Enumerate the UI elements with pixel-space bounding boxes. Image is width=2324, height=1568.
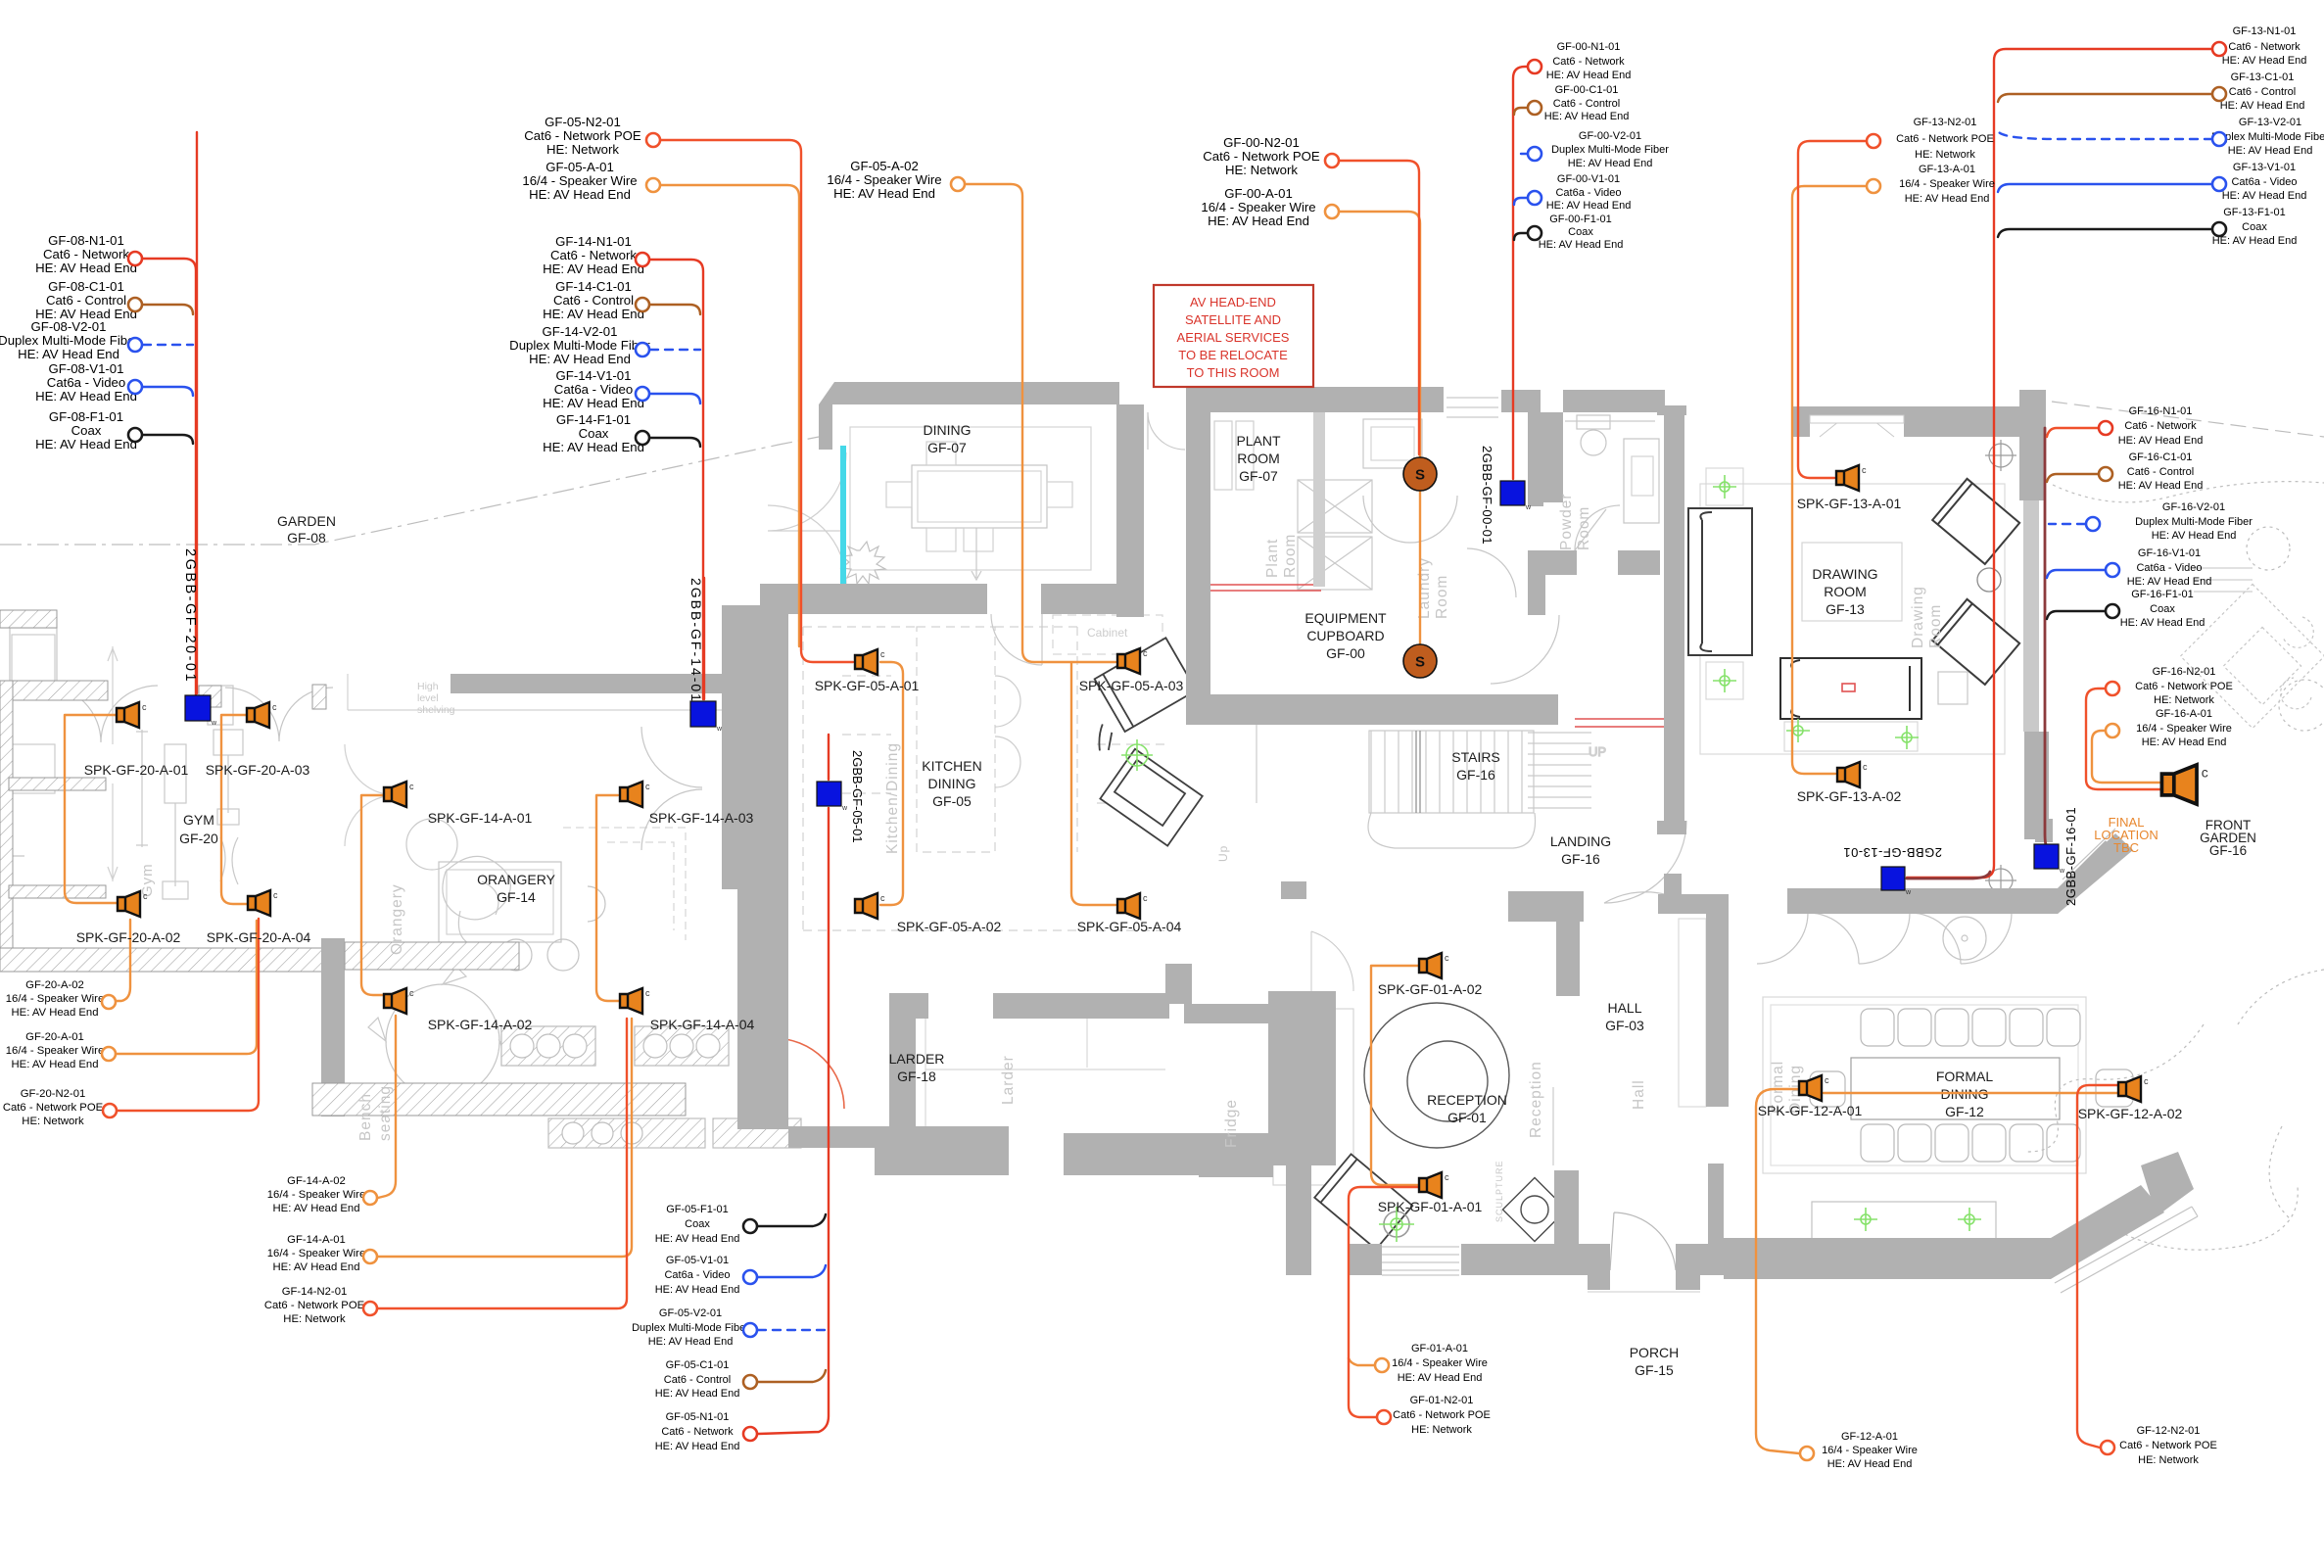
- svg-text:HE: AV Head End: HE: AV Head End: [833, 186, 935, 201]
- svg-text:c: c: [880, 649, 885, 659]
- svg-text:GF-16: GF-16: [1561, 851, 1600, 867]
- svg-text:Drawing: Drawing: [1910, 586, 1926, 648]
- svg-text:GF-14-A-01: GF-14-A-01: [287, 1234, 346, 1246]
- svg-text:Room: Room: [1927, 604, 1944, 648]
- svg-text:Room: Room: [1282, 534, 1299, 578]
- svg-text:HE: Network: HE: Network: [2154, 694, 2214, 706]
- svg-text:c: c: [1825, 1075, 1829, 1085]
- svg-text:GF-01: GF-01: [1447, 1110, 1487, 1125]
- svg-text:Coax: Coax: [2242, 221, 2267, 233]
- svg-text:HE: AV Head End: HE: AV Head End: [648, 1336, 734, 1348]
- svg-text:SPK-GF-14-A-04: SPK-GF-14-A-04: [650, 1017, 755, 1032]
- svg-text:GF-08-C1-01: GF-08-C1-01: [48, 279, 124, 294]
- svg-text:HE: AV Head End: HE: AV Head End: [2152, 530, 2237, 542]
- svg-text:GF-05-N1-01: GF-05-N1-01: [666, 1411, 730, 1423]
- svg-text:GF-14-A-02: GF-14-A-02: [287, 1175, 346, 1187]
- svg-text:c: c: [645, 988, 650, 998]
- svg-text:PORCH: PORCH: [1630, 1345, 1680, 1360]
- svg-text:16/4 - Speaker Wire: 16/4 - Speaker Wire: [1392, 1357, 1488, 1369]
- svg-text:GF-05-A-01: GF-05-A-01: [545, 160, 614, 174]
- svg-text:AV HEAD-END: AV HEAD-END: [1190, 295, 1276, 309]
- svg-text:GF-05-V1-01: GF-05-V1-01: [666, 1255, 729, 1266]
- svg-text:SPK-GF-14-A-03: SPK-GF-14-A-03: [649, 810, 754, 826]
- svg-text:ROOM: ROOM: [1824, 584, 1867, 599]
- svg-text:c: c: [273, 890, 278, 900]
- svg-text:Cat6 - Control: Cat6 - Control: [46, 293, 126, 308]
- svg-text:Cat6 - Network: Cat6 - Network: [2228, 41, 2300, 53]
- svg-text:SPK-GF-20-A-04: SPK-GF-20-A-04: [207, 929, 311, 945]
- svg-text:2GBB-GF-14-01: 2GBB-GF-14-01: [688, 578, 704, 703]
- svg-text:c: c: [2144, 1076, 2149, 1086]
- svg-text:Reception: Reception: [1528, 1061, 1544, 1138]
- svg-text:HE: AV Head End: HE: AV Head End: [2222, 55, 2307, 67]
- svg-text:HE: AV Head End: HE: AV Head End: [2220, 100, 2305, 112]
- svg-text:16/4 - Speaker Wire: 16/4 - Speaker Wire: [6, 993, 104, 1005]
- svg-text:HE: AV Head End: HE: AV Head End: [35, 261, 137, 275]
- svg-text:Powder: Powder: [1558, 493, 1575, 550]
- svg-text:Duplex Multi-Mode Fiber: Duplex Multi-Mode Fiber: [632, 1322, 749, 1334]
- svg-text:GF-14-N1-01: GF-14-N1-01: [555, 234, 632, 249]
- svg-text:HE: Network: HE: Network: [1225, 163, 1298, 177]
- svg-text:Coax: Coax: [2150, 603, 2175, 615]
- svg-text:GF-00-N2-01: GF-00-N2-01: [1223, 135, 1300, 150]
- svg-text:HE: AV Head End: HE: AV Head End: [2228, 145, 2313, 157]
- svg-text:16/4 - Speaker Wire: 16/4 - Speaker Wire: [267, 1189, 365, 1201]
- svg-text:HE: AV Head End: HE: AV Head End: [273, 1261, 360, 1273]
- svg-text:HE: AV Head End: HE: AV Head End: [35, 437, 137, 451]
- svg-text:16/4 - Speaker Wire: 16/4 - Speaker Wire: [827, 172, 941, 187]
- svg-text:GF-16-C1-01: GF-16-C1-01: [2129, 451, 2193, 463]
- svg-text:c: c: [143, 891, 148, 901]
- svg-text:HE: AV Head End: HE: AV Head End: [543, 396, 644, 410]
- svg-text:Kitchen/Dining: Kitchen/Dining: [884, 742, 901, 854]
- svg-text:SPK-GF-01-A-02: SPK-GF-01-A-02: [1378, 981, 1483, 997]
- svg-text:HE: AV Head End: HE: AV Head End: [2127, 576, 2212, 588]
- svg-text:GF-00-A-01: GF-00-A-01: [1224, 186, 1293, 201]
- svg-text:Coax: Coax: [579, 426, 609, 441]
- svg-text:HE: AV Head End: HE: AV Head End: [655, 1388, 740, 1400]
- svg-text:HE: AV Head End: HE: AV Head End: [1539, 239, 1624, 251]
- svg-text:GF-03: GF-03: [1605, 1018, 1644, 1033]
- svg-text:2GBB-GF-05-01: 2GBB-GF-05-01: [850, 750, 865, 843]
- svg-text:RECEPTION: RECEPTION: [1427, 1092, 1507, 1108]
- svg-text:Cat6 - Control: Cat6 - Control: [664, 1374, 731, 1386]
- svg-text:GF-13-C1-01: GF-13-C1-01: [2231, 71, 2295, 83]
- svg-text:c: c: [880, 893, 885, 903]
- svg-text:GF-15: GF-15: [1635, 1362, 1674, 1378]
- svg-text:Cat6 - Network: Cat6 - Network: [1552, 56, 1625, 68]
- svg-text:SPK-GF-05-A-02: SPK-GF-05-A-02: [897, 919, 1002, 934]
- svg-text:GF-12: GF-12: [1945, 1104, 1984, 1119]
- svg-text:GF-07: GF-07: [1239, 468, 1278, 484]
- svg-text:GF-20-A-01: GF-20-A-01: [25, 1031, 84, 1043]
- svg-text:GF-13-N2-01: GF-13-N2-01: [1914, 117, 1977, 128]
- svg-text:SPK-GF-05-A-04: SPK-GF-05-A-04: [1077, 919, 1182, 934]
- svg-text:GF-16: GF-16: [2209, 843, 2247, 858]
- svg-text:GF-12-A-01: GF-12-A-01: [1841, 1431, 1898, 1443]
- svg-text:HE: AV Head End: HE: AV Head End: [2120, 617, 2205, 629]
- svg-text:Cat6 - Network: Cat6 - Network: [661, 1426, 734, 1438]
- svg-text:GF-00-V2-01: GF-00-V2-01: [1579, 130, 1641, 142]
- svg-text:c: c: [1862, 465, 1867, 475]
- svg-text:Duplex Multi-Mode Fiber: Duplex Multi-Mode Fiber: [2135, 516, 2253, 528]
- svg-text:Room: Room: [1576, 506, 1592, 550]
- svg-text:GF-05-A-02: GF-05-A-02: [850, 159, 919, 173]
- svg-text:GF-05-V2-01: GF-05-V2-01: [659, 1307, 722, 1319]
- svg-text:HE: AV Head End: HE: AV Head End: [2212, 235, 2298, 247]
- svg-text:16/4 - Speaker Wire: 16/4 - Speaker Wire: [522, 173, 637, 188]
- svg-text:c: c: [409, 782, 414, 791]
- svg-text:GF-16-V1-01: GF-16-V1-01: [2138, 547, 2201, 559]
- svg-text:SPK-GF-05-A-03: SPK-GF-05-A-03: [1079, 678, 1184, 693]
- svg-text:GF-08-V1-01: GF-08-V1-01: [49, 361, 124, 376]
- svg-text:c: c: [272, 702, 277, 712]
- svg-text:2GBB-GF-13-01: 2GBB-GF-13-01: [1843, 845, 1942, 860]
- svg-text:HE: AV Head End: HE: AV Head End: [12, 1059, 99, 1070]
- svg-text:GF-18: GF-18: [897, 1069, 936, 1084]
- svg-text:Cat6 - Network POE: Cat6 - Network POE: [2119, 1440, 2217, 1451]
- svg-text:Cat6 - Control: Cat6 - Control: [2229, 86, 2296, 98]
- svg-text:Coax: Coax: [71, 423, 102, 438]
- svg-text:DINING: DINING: [924, 422, 972, 438]
- svg-text:16/4 - Speaker Wire: 16/4 - Speaker Wire: [267, 1248, 365, 1259]
- svg-text:shelving: shelving: [417, 704, 455, 716]
- svg-text:Plant: Plant: [1264, 539, 1281, 578]
- svg-text:KITCHEN: KITCHEN: [922, 758, 981, 774]
- svg-text:Bench: Bench: [357, 1093, 374, 1141]
- svg-text:HE: AV Head End: HE: AV Head End: [529, 352, 631, 366]
- svg-text:AERIAL SERVICES: AERIAL SERVICES: [1177, 330, 1290, 345]
- svg-text:HE: Network: HE: Network: [546, 142, 619, 157]
- svg-text:level: level: [417, 692, 439, 704]
- svg-text:Cat6 - Network POE: Cat6 - Network POE: [1393, 1409, 1491, 1421]
- svg-text:SPK-GF-13-A-01: SPK-GF-13-A-01: [1797, 496, 1902, 511]
- svg-text:Cat6 - Control: Cat6 - Control: [2127, 466, 2194, 478]
- svg-text:Gym: Gym: [139, 863, 156, 897]
- svg-text:HE: AV Head End: HE: AV Head End: [2142, 736, 2227, 748]
- svg-text:c: c: [409, 988, 414, 998]
- svg-text:DRAWING: DRAWING: [1812, 566, 1877, 582]
- svg-text:GF-13-N1-01: GF-13-N1-01: [2233, 25, 2297, 37]
- svg-text:GF-20-N2-01: GF-20-N2-01: [21, 1088, 86, 1100]
- svg-text:S: S: [1415, 467, 1425, 484]
- svg-text:LANDING: LANDING: [1550, 833, 1611, 849]
- svg-text:HE: AV Head End: HE: AV Head End: [2222, 190, 2307, 202]
- svg-text:c: c: [1445, 953, 1449, 963]
- svg-text:c: c: [142, 702, 147, 712]
- svg-text:Fridge: Fridge: [1223, 1099, 1240, 1148]
- svg-text:Duplex Multi-Mode Fiber: Duplex Multi-Mode Fiber: [1551, 144, 1669, 156]
- svg-text:GF-14-F1-01: GF-14-F1-01: [556, 412, 631, 427]
- svg-text:GF-01-N2-01: GF-01-N2-01: [1410, 1395, 1474, 1406]
- svg-text:c: c: [645, 782, 650, 791]
- svg-text:Cat6 - Control: Cat6 - Control: [553, 293, 634, 308]
- svg-text:2GBB-GF-00-01: 2GBB-GF-00-01: [1480, 446, 1494, 545]
- svg-text:GF-00-C1-01: GF-00-C1-01: [1555, 84, 1619, 96]
- svg-text:High: High: [417, 681, 439, 692]
- svg-text:HE: AV Head End: HE: AV Head End: [655, 1284, 740, 1296]
- svg-text:LARDER: LARDER: [889, 1051, 945, 1067]
- svg-text:STAIRS: STAIRS: [1451, 749, 1500, 765]
- svg-text:HE: AV Head End: HE: AV Head End: [1546, 70, 1632, 81]
- svg-text:HE: Network: HE: Network: [2138, 1454, 2199, 1466]
- svg-text:GF-05-N2-01: GF-05-N2-01: [545, 115, 621, 129]
- svg-text:SATELLITE AND: SATELLITE AND: [1185, 312, 1281, 327]
- svg-text:GF-13-V1-01: GF-13-V1-01: [2233, 162, 2296, 173]
- svg-text:2GBB-GF-16-01: 2GBB-GF-16-01: [2063, 807, 2078, 906]
- svg-text:GF-14: GF-14: [497, 889, 536, 905]
- svg-text:GF-08-F1-01: GF-08-F1-01: [49, 409, 123, 424]
- svg-text:GF-00-N1-01: GF-00-N1-01: [1557, 41, 1621, 53]
- svg-text:GF-14-N2-01: GF-14-N2-01: [282, 1286, 348, 1298]
- svg-text:2GBB-GF-20-01: 2GBB-GF-20-01: [182, 548, 198, 684]
- svg-text:TO BE RELOCATE: TO BE RELOCATE: [1178, 348, 1288, 362]
- svg-text:UP: UP: [1589, 744, 1606, 759]
- svg-text:HALL: HALL: [1607, 1000, 1641, 1016]
- svg-text:Coax: Coax: [685, 1218, 710, 1230]
- svg-text:GF-13-A-01: GF-13-A-01: [1919, 164, 1975, 175]
- svg-text:GF-00-V1-01: GF-00-V1-01: [1557, 173, 1620, 185]
- svg-text:w: w: [211, 720, 217, 727]
- svg-text:c: c: [2202, 764, 2208, 780]
- svg-text:GF-16-N1-01: GF-16-N1-01: [2129, 405, 2193, 417]
- svg-text:PLANT: PLANT: [1236, 433, 1281, 449]
- svg-text:HE: AV Head End: HE: AV Head End: [1905, 193, 1990, 205]
- svg-text:SPK-GF-01-A-01: SPK-GF-01-A-01: [1378, 1199, 1483, 1214]
- svg-text:Cat6a - Video: Cat6a - Video: [1555, 187, 1621, 199]
- svg-text:CUPBOARD: CUPBOARD: [1306, 628, 1384, 643]
- svg-text:HE: AV Head End: HE: AV Head End: [1568, 158, 1653, 169]
- svg-text:Cat6 - Network POE: Cat6 - Network POE: [264, 1300, 365, 1311]
- svg-text:HE: Network: HE: Network: [1411, 1424, 1472, 1436]
- svg-text:Cat6 - Network POE: Cat6 - Network POE: [524, 128, 641, 143]
- svg-text:GYM: GYM: [183, 812, 214, 828]
- svg-text:SCULPTURE: SCULPTURE: [1494, 1160, 1504, 1222]
- svg-text:HE: AV Head End: HE: AV Head End: [2118, 480, 2204, 492]
- svg-text:S: S: [1415, 654, 1425, 671]
- svg-text:HE: AV Head End: HE: AV Head End: [273, 1203, 360, 1214]
- svg-text:GF-16-A-01: GF-16-A-01: [2156, 708, 2212, 720]
- svg-text:HE: AV Head End: HE: AV Head End: [543, 440, 644, 454]
- svg-text:GF-01-A-01: GF-01-A-01: [1411, 1343, 1468, 1354]
- svg-text:SPK-GF-05-A-01: SPK-GF-05-A-01: [815, 678, 920, 693]
- svg-text:Cabinet: Cabinet: [1087, 626, 1128, 640]
- svg-text:Cat6 - Network: Cat6 - Network: [2124, 420, 2197, 432]
- svg-text:Cat6 - Network: Cat6 - Network: [550, 248, 637, 262]
- svg-text:ROOM: ROOM: [1237, 451, 1280, 466]
- svg-text:Larder: Larder: [1000, 1055, 1017, 1105]
- svg-text:c: c: [1143, 893, 1148, 903]
- svg-text:HE: AV Head End: HE: AV Head End: [1544, 111, 1630, 122]
- svg-text:Orangery: Orangery: [389, 883, 405, 955]
- svg-text:HE: AV Head End: HE: AV Head End: [1546, 200, 1632, 212]
- svg-text:w: w: [716, 726, 723, 733]
- svg-text:GF-16: GF-16: [1456, 767, 1495, 783]
- svg-text:HE: AV Head End: HE: AV Head End: [543, 261, 644, 276]
- svg-text:w: w: [1525, 504, 1532, 511]
- svg-text:DINING: DINING: [928, 776, 976, 791]
- svg-text:GF-08-V2-01: GF-08-V2-01: [31, 319, 107, 334]
- svg-text:SPK-GF-20-A-03: SPK-GF-20-A-03: [206, 762, 310, 778]
- svg-text:Cat6 - Network POE: Cat6 - Network POE: [1896, 133, 1994, 145]
- svg-text:16/4 - Speaker Wire: 16/4 - Speaker Wire: [1822, 1445, 1918, 1456]
- svg-text:16/4 - Speaker Wire: 16/4 - Speaker Wire: [6, 1045, 104, 1057]
- svg-text:16/4 - Speaker Wire: 16/4 - Speaker Wire: [2136, 723, 2232, 735]
- svg-text:Cat6a - Video: Cat6a - Video: [2231, 176, 2297, 188]
- svg-text:HE: AV Head End: HE: AV Head End: [1208, 214, 1309, 228]
- svg-text:GF-08-N1-01: GF-08-N1-01: [48, 233, 124, 248]
- svg-text:Room: Room: [1434, 575, 1450, 619]
- svg-text:Hall: Hall: [1631, 1079, 1647, 1110]
- svg-text:Duplex Multi-Mode Fiber: Duplex Multi-Mode Fiber: [0, 333, 139, 348]
- svg-text:Cat6 - Control: Cat6 - Control: [1553, 98, 1620, 110]
- svg-text:GF-14-C1-01: GF-14-C1-01: [555, 279, 632, 294]
- svg-text:GF-05: GF-05: [932, 793, 972, 809]
- svg-text:HE: AV Head End: HE: AV Head End: [543, 307, 644, 321]
- svg-text:c: c: [1143, 648, 1148, 658]
- svg-text:SPK-GF-14-A-02: SPK-GF-14-A-02: [428, 1017, 533, 1032]
- svg-text:Up: Up: [1216, 845, 1230, 862]
- svg-text:GF-00: GF-00: [1326, 645, 1365, 661]
- svg-text:FORMAL: FORMAL: [1936, 1069, 1994, 1084]
- svg-text:HE: AV Head End: HE: AV Head End: [1827, 1458, 1913, 1470]
- svg-text:Coax: Coax: [1568, 226, 1593, 238]
- svg-text:HE: AV Head End: HE: AV Head End: [18, 347, 119, 361]
- svg-text:HE: AV Head End: HE: AV Head End: [35, 389, 137, 404]
- svg-text:Cat6 - Network POE: Cat6 - Network POE: [1203, 149, 1320, 164]
- svg-text:GF-20-A-02: GF-20-A-02: [25, 979, 84, 991]
- svg-text:GF-16-N2-01: GF-16-N2-01: [2153, 666, 2216, 678]
- svg-text:GF-16-V2-01: GF-16-V2-01: [2162, 501, 2225, 513]
- svg-text:HE: AV Head End: HE: AV Head End: [2118, 435, 2204, 447]
- svg-text:GF-13-F1-01: GF-13-F1-01: [2223, 207, 2286, 218]
- svg-text:GARDEN: GARDEN: [277, 513, 336, 529]
- svg-text:GF-07: GF-07: [927, 440, 967, 455]
- svg-text:GF-16-F1-01: GF-16-F1-01: [2131, 589, 2194, 600]
- svg-text:GF-08: GF-08: [287, 530, 326, 546]
- svg-text:Duplex Multi-Mode Fiber: Duplex Multi-Mode Fiber: [509, 338, 650, 353]
- svg-text:HE: AV Head End: HE: AV Head End: [1398, 1372, 1483, 1384]
- svg-text:HE: Network: HE: Network: [1915, 149, 1975, 161]
- svg-text:Cat6 - Network POE: Cat6 - Network POE: [3, 1102, 104, 1114]
- svg-text:16/4 - Speaker Wire: 16/4 - Speaker Wire: [1899, 178, 1995, 190]
- svg-text:c: c: [1445, 1172, 1449, 1182]
- svg-text:w: w: [841, 805, 848, 812]
- svg-text:SPK-GF-12-A-02: SPK-GF-12-A-02: [2078, 1106, 2183, 1121]
- svg-text:SPK-GF-20-A-01: SPK-GF-20-A-01: [84, 762, 189, 778]
- svg-text:Cat6 - Network POE: Cat6 - Network POE: [2135, 681, 2233, 692]
- svg-text:Cat6a - Video: Cat6a - Video: [47, 375, 125, 390]
- svg-text:Cat6a - Video: Cat6a - Video: [2136, 562, 2202, 574]
- svg-text:GF-00-F1-01: GF-00-F1-01: [1549, 214, 1612, 225]
- svg-text:w: w: [1905, 889, 1912, 896]
- svg-text:GF-14-V2-01: GF-14-V2-01: [543, 324, 618, 339]
- svg-text:TO THIS ROOM: TO THIS ROOM: [1187, 365, 1280, 380]
- svg-text:TBC: TBC: [2113, 840, 2139, 855]
- svg-text:Cat6a - Video: Cat6a - Video: [554, 382, 633, 397]
- svg-text:Cat6 - Network: Cat6 - Network: [43, 247, 129, 261]
- svg-text:Cat6a - Video: Cat6a - Video: [664, 1269, 730, 1281]
- svg-text:GF-20: GF-20: [179, 831, 218, 846]
- svg-text:SPK-GF-20-A-02: SPK-GF-20-A-02: [76, 929, 181, 945]
- svg-text:Laundry: Laundry: [1416, 557, 1433, 619]
- svg-text:HE: Network: HE: Network: [22, 1116, 84, 1127]
- svg-text:GF-05-C1-01: GF-05-C1-01: [666, 1359, 730, 1371]
- svg-text:HE: AV Head End: HE: AV Head End: [529, 187, 631, 202]
- svg-text:HE: AV Head End: HE: AV Head End: [12, 1007, 99, 1019]
- svg-text:c: c: [1863, 762, 1868, 772]
- svg-text:GF-13-V2-01: GF-13-V2-01: [2239, 117, 2301, 128]
- svg-text:GF-05-F1-01: GF-05-F1-01: [666, 1204, 729, 1215]
- svg-text:GF-12-N2-01: GF-12-N2-01: [2137, 1425, 2201, 1437]
- svg-text:ORANGERY: ORANGERY: [477, 872, 556, 887]
- svg-text:EQUIPMENT: EQUIPMENT: [1304, 610, 1387, 626]
- svg-text:HE: AV Head End: HE: AV Head End: [655, 1441, 740, 1452]
- svg-text:HE: Network: HE: Network: [283, 1313, 346, 1325]
- svg-text:GF-14-V1-01: GF-14-V1-01: [556, 368, 632, 383]
- svg-text:SPK-GF-13-A-02: SPK-GF-13-A-02: [1797, 788, 1902, 804]
- svg-text:16/4 - Speaker Wire: 16/4 - Speaker Wire: [1201, 200, 1315, 214]
- svg-text:GF-13: GF-13: [1826, 601, 1865, 617]
- svg-text:Duplex Multi-Mode Fiber: Duplex Multi-Mode Fiber: [2211, 131, 2324, 143]
- svg-text:HE: AV Head End: HE: AV Head End: [655, 1233, 740, 1245]
- svg-text:seating: seating: [377, 1085, 394, 1141]
- svg-text:SPK-GF-12-A-01: SPK-GF-12-A-01: [1758, 1103, 1863, 1118]
- svg-text:SPK-GF-14-A-01: SPK-GF-14-A-01: [428, 810, 533, 826]
